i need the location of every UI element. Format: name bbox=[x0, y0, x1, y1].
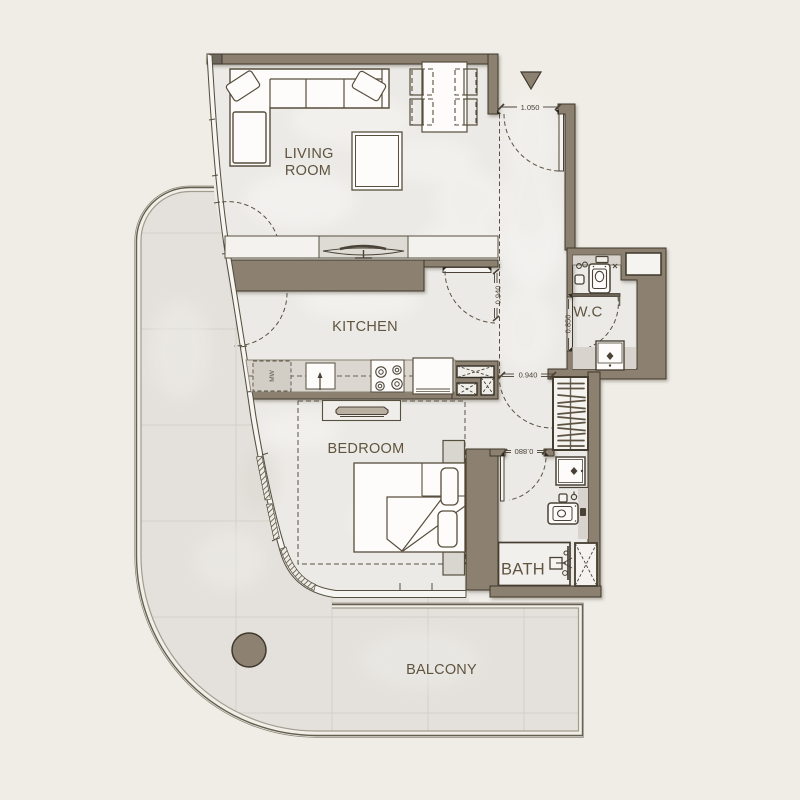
svg-text:BALCONY: BALCONY bbox=[406, 662, 477, 678]
svg-text:1.050: 1.050 bbox=[521, 103, 540, 112]
svg-text:0.940: 0.940 bbox=[494, 286, 503, 305]
svg-text:KITCHEN: KITCHEN bbox=[332, 319, 398, 335]
svg-text:BATH: BATH bbox=[501, 561, 545, 579]
svg-text:ROOM: ROOM bbox=[285, 163, 331, 179]
svg-text:0.940: 0.940 bbox=[519, 371, 538, 380]
svg-text:W.C: W.C bbox=[573, 304, 602, 321]
svg-text:0.880: 0.880 bbox=[515, 447, 534, 456]
svg-text:LIVING: LIVING bbox=[284, 146, 333, 162]
svg-text:0.850: 0.850 bbox=[564, 315, 573, 334]
svg-text:BEDROOM: BEDROOM bbox=[327, 441, 404, 457]
svg-text:MW: MW bbox=[269, 369, 276, 381]
